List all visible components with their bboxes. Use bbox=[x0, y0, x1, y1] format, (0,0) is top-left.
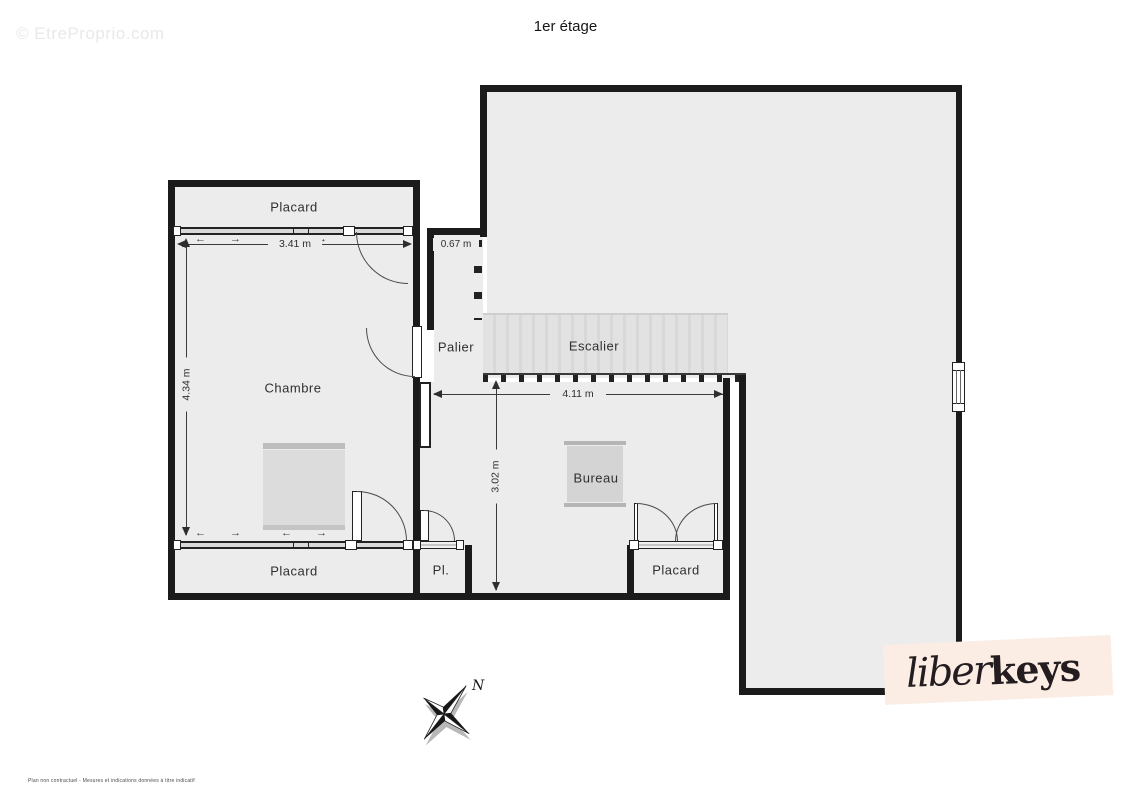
dim-arrow bbox=[433, 390, 442, 398]
sill-cap bbox=[713, 540, 723, 550]
dim-label-palier-width: 0.67 m bbox=[433, 238, 479, 251]
wall-palier-north bbox=[427, 228, 487, 235]
rail-tick bbox=[308, 227, 309, 235]
wall-bigroom-west-lower bbox=[739, 375, 746, 695]
slide-arrow-icon: ← bbox=[195, 528, 206, 538]
rail-tick bbox=[293, 541, 294, 549]
rail-cap bbox=[173, 540, 181, 550]
rail-cap bbox=[345, 540, 357, 550]
sill-cap bbox=[629, 540, 639, 550]
page-title: 1er étage bbox=[0, 18, 1131, 35]
rail-cap bbox=[343, 226, 355, 236]
logo-bold-part: keys bbox=[989, 644, 1081, 693]
room-label-placard-bottom-left: Placard bbox=[270, 564, 318, 579]
window-east bbox=[952, 362, 965, 412]
slide-arrow-icon: ← bbox=[195, 234, 206, 244]
dim-arrow bbox=[182, 527, 190, 536]
door-sill-pl-closet bbox=[415, 541, 462, 549]
dim-arrow bbox=[714, 390, 723, 398]
dim-label-chambre-width: 3.41 m bbox=[268, 238, 322, 251]
wall-placard-br-west bbox=[627, 545, 634, 600]
wall-partition-outlined bbox=[419, 382, 431, 448]
sill-cap bbox=[413, 540, 421, 550]
dim-label-bureau-height: 3.02 m bbox=[490, 450, 503, 504]
room-label-palier: Palier bbox=[438, 340, 474, 355]
dim-arrow bbox=[492, 380, 500, 389]
dim-label-bureau-width: 4.11 m bbox=[550, 388, 606, 401]
room-label-bureau: Bureau bbox=[574, 471, 619, 486]
room-label-chambre: Chambre bbox=[265, 381, 322, 396]
dim-arrow bbox=[492, 582, 500, 591]
wall-bigroom-west-upper bbox=[480, 85, 487, 237]
rail-cap bbox=[173, 226, 181, 236]
dim-arrow bbox=[403, 240, 412, 248]
disclaimer-text: Plan non contractuel - Mesures et indica… bbox=[28, 778, 195, 784]
rail-tick bbox=[308, 541, 309, 549]
wall-bigroom-north bbox=[480, 85, 962, 92]
stair-railing-balusters bbox=[483, 375, 746, 382]
rail-tick bbox=[293, 227, 294, 235]
wall-left-block-west bbox=[168, 180, 175, 600]
sill-cap bbox=[456, 540, 464, 550]
dim-label-chambre-height: 4.34 m bbox=[181, 358, 194, 412]
room-label-placard-top: Placard bbox=[270, 200, 318, 215]
wall-left-block-east-upper bbox=[413, 180, 420, 330]
door-sill-placard-br bbox=[635, 541, 723, 549]
slide-arrow-icon: → bbox=[230, 234, 241, 244]
logo-script-part: liber bbox=[905, 647, 991, 697]
sliding-door-rail-bottom bbox=[175, 541, 413, 549]
slide-arrow-icon: → bbox=[230, 528, 241, 538]
dim-arrow bbox=[182, 238, 190, 247]
wall-south-bottom bbox=[168, 593, 730, 600]
wall-bureau-east bbox=[723, 378, 730, 600]
rail-cap bbox=[403, 540, 413, 550]
room-label-placard-bottom-right: Placard bbox=[652, 563, 700, 578]
floorplan-canvas: © EtreProprio.com 1er étage bbox=[0, 0, 1131, 800]
wall-left-block-north bbox=[168, 180, 420, 187]
wall-pl-closet-east bbox=[465, 545, 472, 600]
liberkeys-logo: liberkeys bbox=[883, 635, 1113, 705]
window-glass bbox=[956, 370, 961, 404]
stair-open-edge bbox=[474, 240, 482, 320]
floor-bigroom-lower bbox=[746, 375, 956, 688]
room-label-pl-closet: Pl. bbox=[433, 563, 450, 578]
bed-furniture bbox=[263, 443, 345, 530]
room-label-escalier: Escalier bbox=[569, 339, 619, 354]
compass-rose-icon: N bbox=[412, 674, 504, 760]
north-label: N bbox=[471, 678, 485, 694]
